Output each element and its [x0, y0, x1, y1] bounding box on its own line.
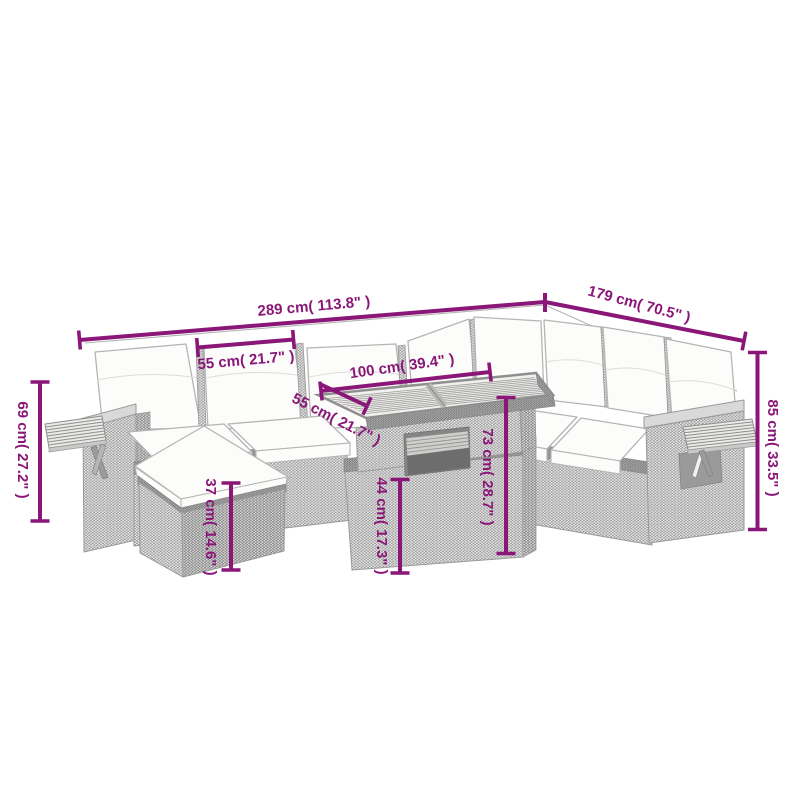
svg-text:85 cm( 33.5" ): 85 cm( 33.5" ): [764, 399, 781, 496]
svg-text:73 cm( 28.7" ): 73 cm( 28.7" ): [479, 428, 496, 525]
svg-text:44 cm( 17.3" ): 44 cm( 17.3" ): [373, 477, 390, 574]
svg-text:69 cm( 27.2" ): 69 cm( 27.2" ): [14, 401, 31, 498]
svg-text:37 cm( 14.6" ): 37 cm( 14.6" ): [202, 478, 219, 575]
